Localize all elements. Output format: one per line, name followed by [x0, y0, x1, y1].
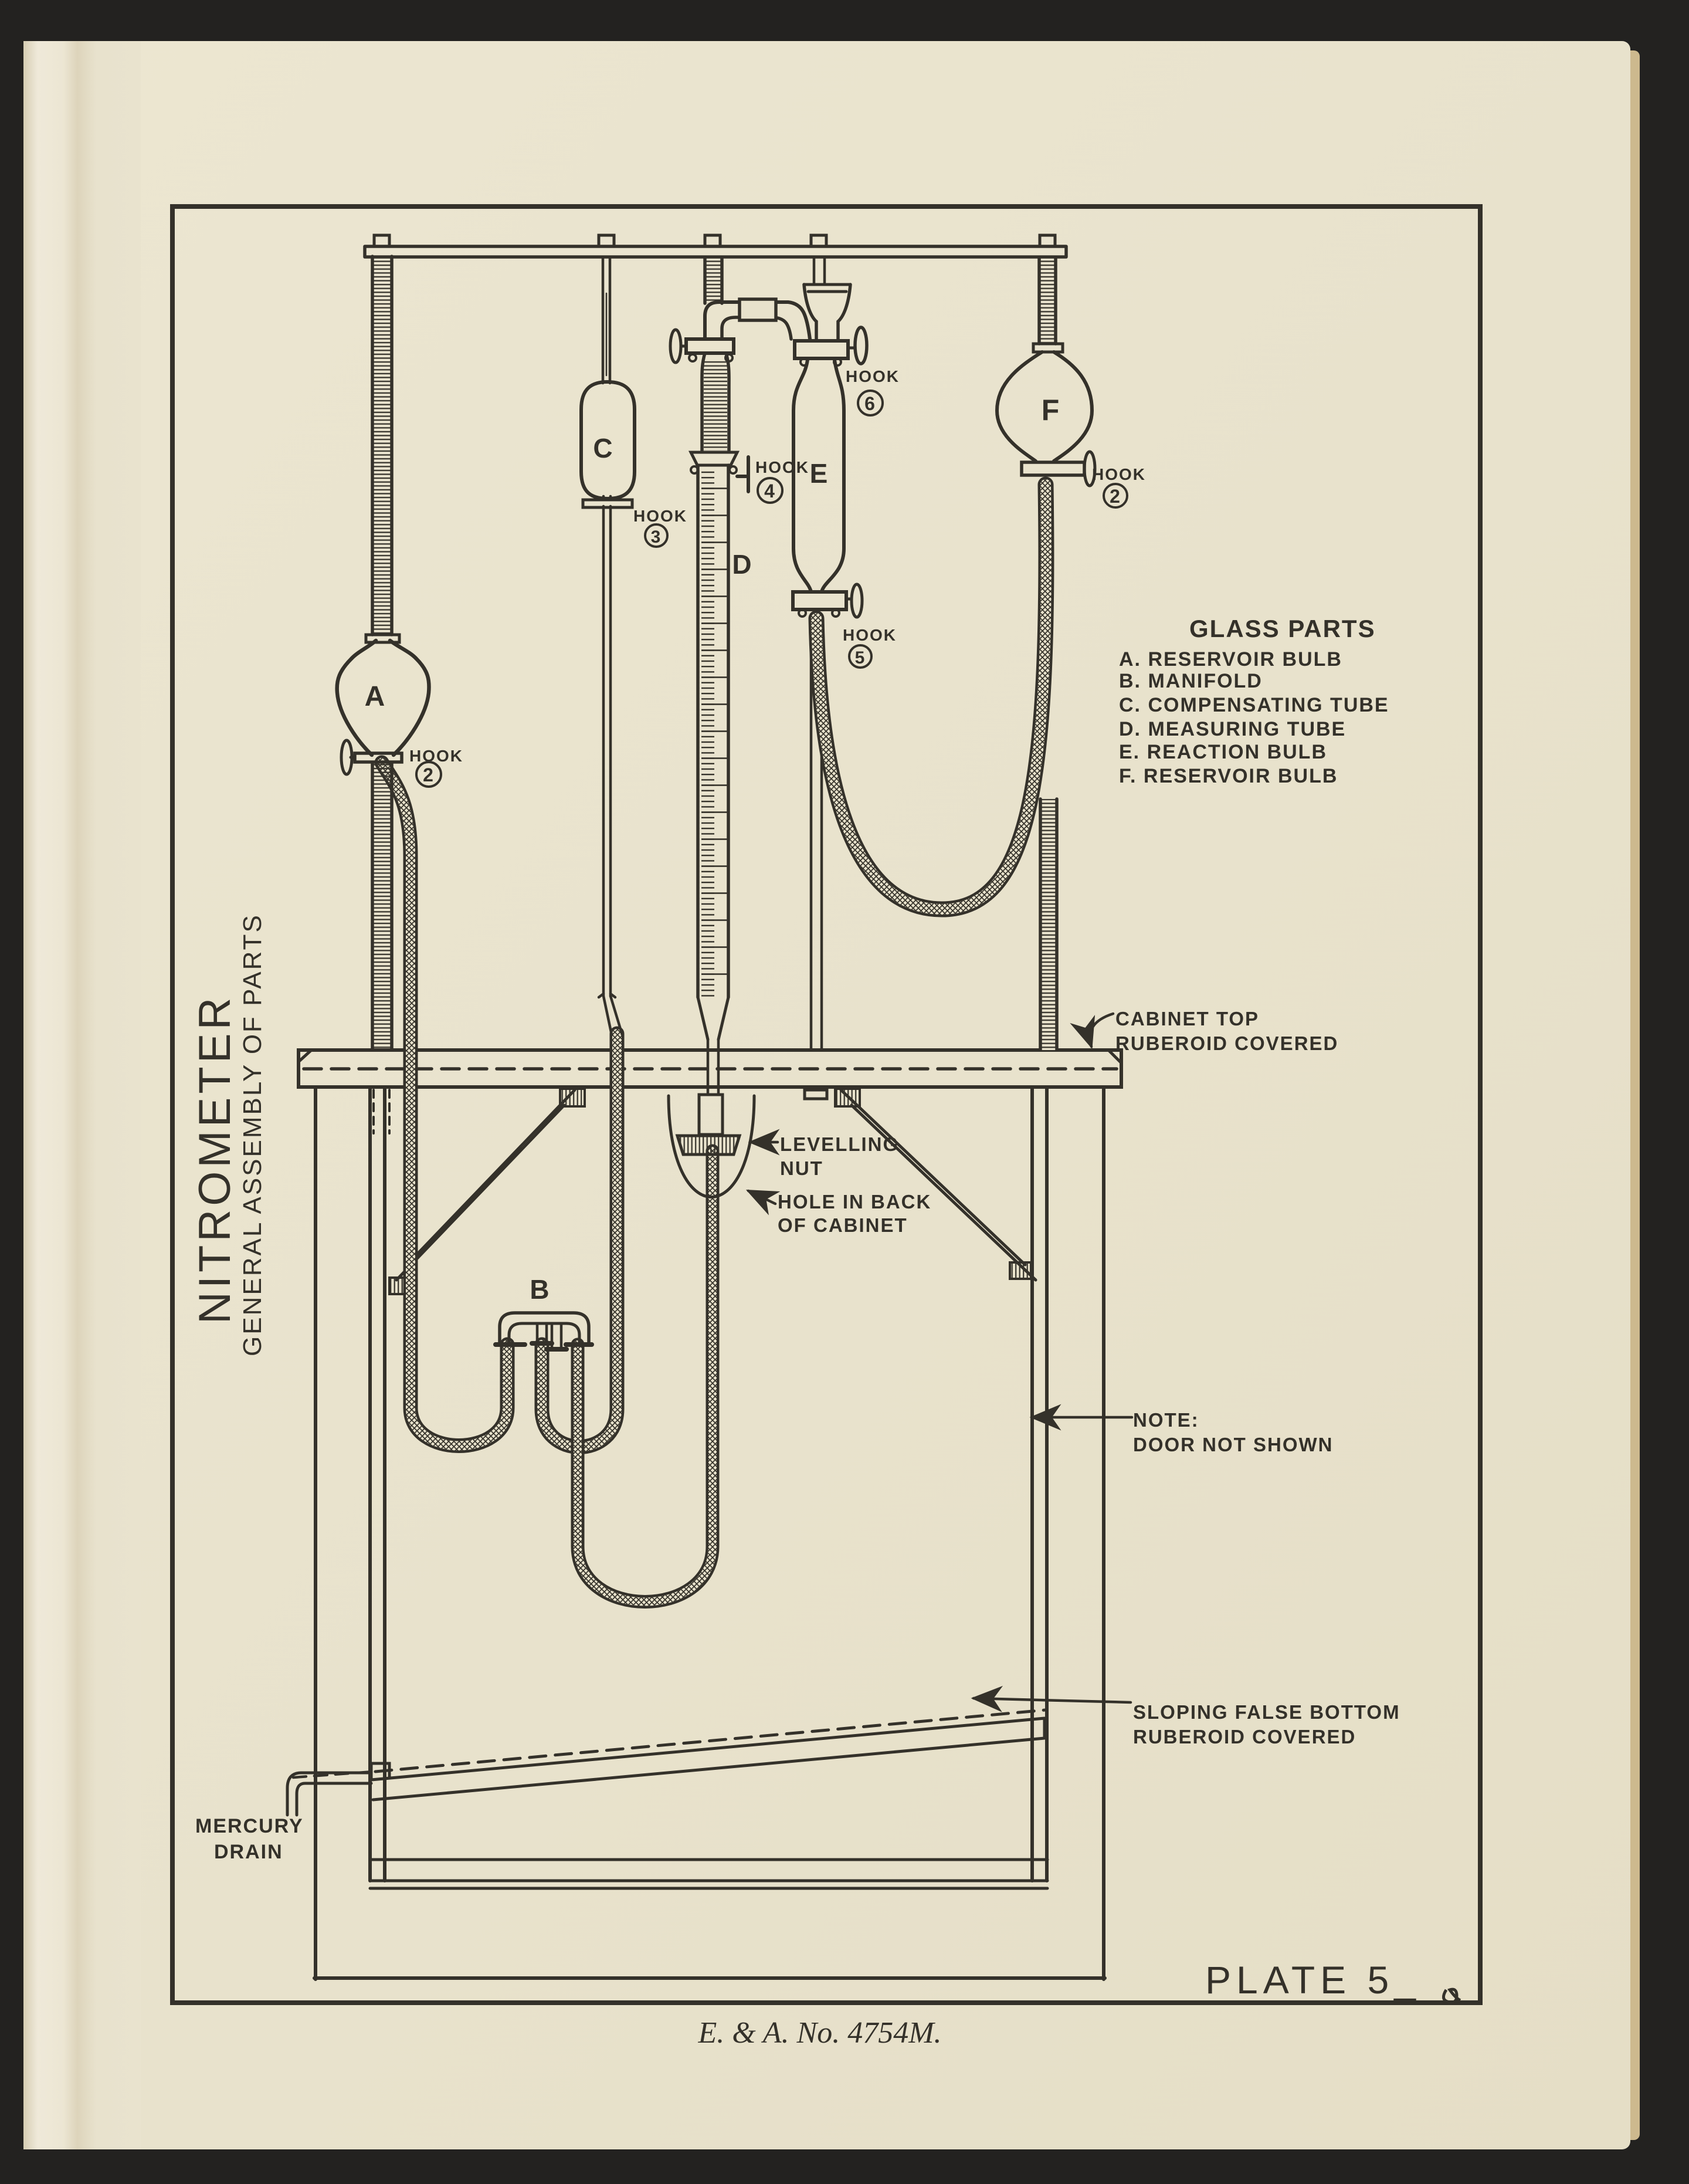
- svg-text:E. & A. No. 4754M.: E. & A. No. 4754M.: [697, 2016, 941, 2050]
- svg-text:2: 2: [423, 764, 435, 785]
- svg-text:F: F: [1042, 394, 1061, 426]
- svg-text:CABINET TOP: CABINET TOP: [1115, 1008, 1259, 1030]
- svg-text:HOLE IN BACK: HOLE IN BACK: [778, 1191, 931, 1213]
- svg-text:PLATE 5_: PLATE 5_: [1205, 1958, 1421, 2002]
- svg-text:4: 4: [764, 480, 776, 502]
- svg-text:6: 6: [864, 393, 876, 414]
- svg-text:A: A: [365, 681, 386, 712]
- svg-text:E: E: [810, 458, 829, 489]
- svg-text:HOOK: HOOK: [633, 507, 687, 525]
- svg-text:HOOK: HOOK: [843, 626, 897, 644]
- svg-text:NITROMETER: NITROMETER: [190, 994, 240, 1324]
- svg-text:RUBEROID COVERED: RUBEROID COVERED: [1115, 1032, 1338, 1054]
- svg-text:3: 3: [651, 527, 662, 547]
- svg-text:5: 5: [855, 648, 866, 668]
- svg-text:DOOR NOT SHOWN: DOOR NOT SHOWN: [1133, 1434, 1333, 1455]
- svg-text:B. MANIFOLD: B. MANIFOLD: [1119, 670, 1263, 692]
- svg-text:D: D: [732, 549, 752, 580]
- svg-text:OF CABINET: OF CABINET: [778, 1214, 908, 1236]
- svg-text:HOOK: HOOK: [409, 747, 463, 765]
- svg-text:D. MEASURING TUBE: D. MEASURING TUBE: [1119, 718, 1346, 740]
- svg-text:C. COMPENSATING TUBE: C. COMPENSATING TUBE: [1119, 694, 1389, 716]
- svg-text:B: B: [530, 1274, 550, 1305]
- svg-text:C: C: [593, 433, 613, 463]
- svg-text:GENERAL ASSEMBLY OF PARTS: GENERAL ASSEMBLY OF PARTS: [238, 913, 267, 1356]
- svg-text:HOOK: HOOK: [755, 458, 809, 476]
- svg-text:GLASS PARTS: GLASS PARTS: [1189, 615, 1376, 642]
- svg-text:E. REACTION BULB: E. REACTION BULB: [1119, 741, 1327, 763]
- svg-text:DRAIN: DRAIN: [214, 1841, 283, 1863]
- svg-text:NUT: NUT: [780, 1157, 823, 1179]
- svg-text:2: 2: [1110, 486, 1121, 507]
- svg-text:RUBEROID COVERED: RUBEROID COVERED: [1133, 1726, 1356, 1748]
- svg-text:NOTE:: NOTE:: [1133, 1409, 1199, 1431]
- svg-text:F. RESERVOIR BULB: F. RESERVOIR BULB: [1119, 765, 1338, 787]
- svg-text:LEVELLING: LEVELLING: [780, 1133, 899, 1155]
- svg-text:HOOK: HOOK: [846, 367, 900, 385]
- svg-text:MERCURY: MERCURY: [195, 1815, 304, 1837]
- svg-text:A. RESERVOIR BULB: A. RESERVOIR BULB: [1119, 648, 1342, 671]
- svg-text:SLOPING FALSE BOTTOM: SLOPING FALSE BOTTOM: [1133, 1701, 1400, 1723]
- svg-text:HOOK: HOOK: [1092, 465, 1146, 483]
